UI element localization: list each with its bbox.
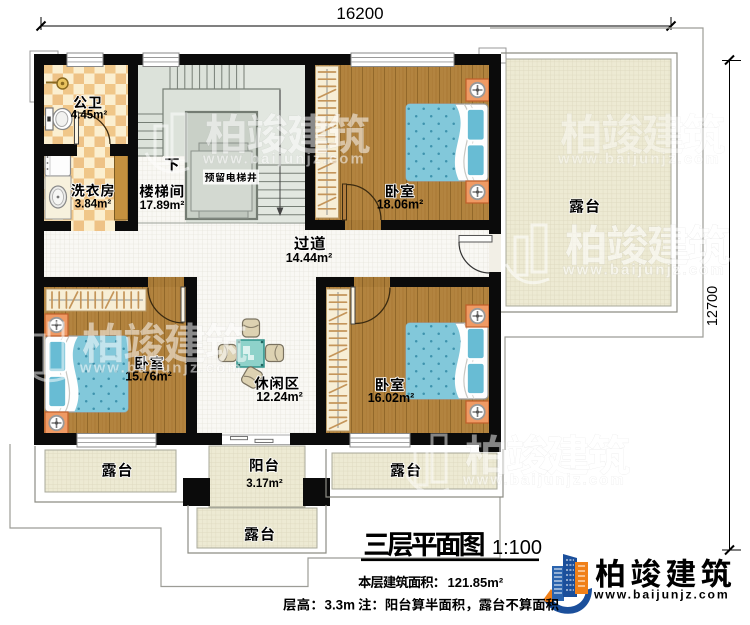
svg-text:16200: 16200 <box>336 4 383 23</box>
svg-text:www.baijunjz.com: www.baijunjz.com <box>562 263 726 279</box>
svg-text:4.45m²: 4.45m² <box>71 110 108 122</box>
svg-text:www.baijunjz.com: www.baijunjz.com <box>593 588 730 602</box>
svg-text:3.3m: 3.3m <box>325 598 356 613</box>
svg-text:14.44m²: 14.44m² <box>286 251 333 265</box>
svg-text:www.baijunjz.com: www.baijunjz.com <box>79 361 243 377</box>
svg-text:3.84m²: 3.84m² <box>75 199 112 211</box>
svg-text:www.baijunjz.com: www.baijunjz.com <box>557 152 721 168</box>
svg-text:16.02m²: 16.02m² <box>368 391 415 405</box>
svg-text:12.24m²: 12.24m² <box>256 390 303 404</box>
svg-text:www.baijunjz.com: www.baijunjz.com <box>202 152 366 168</box>
svg-text:18.06m²: 18.06m² <box>377 198 424 212</box>
svg-text:17.89m²: 17.89m² <box>140 198 185 212</box>
svg-text:www.baijunjz.com: www.baijunjz.com <box>462 473 626 489</box>
svg-text:12700: 12700 <box>705 286 721 326</box>
svg-text:121.85m²: 121.85m² <box>448 575 504 590</box>
svg-text:3.17m²: 3.17m² <box>246 478 283 490</box>
svg-text:1:100: 1:100 <box>492 537 542 559</box>
